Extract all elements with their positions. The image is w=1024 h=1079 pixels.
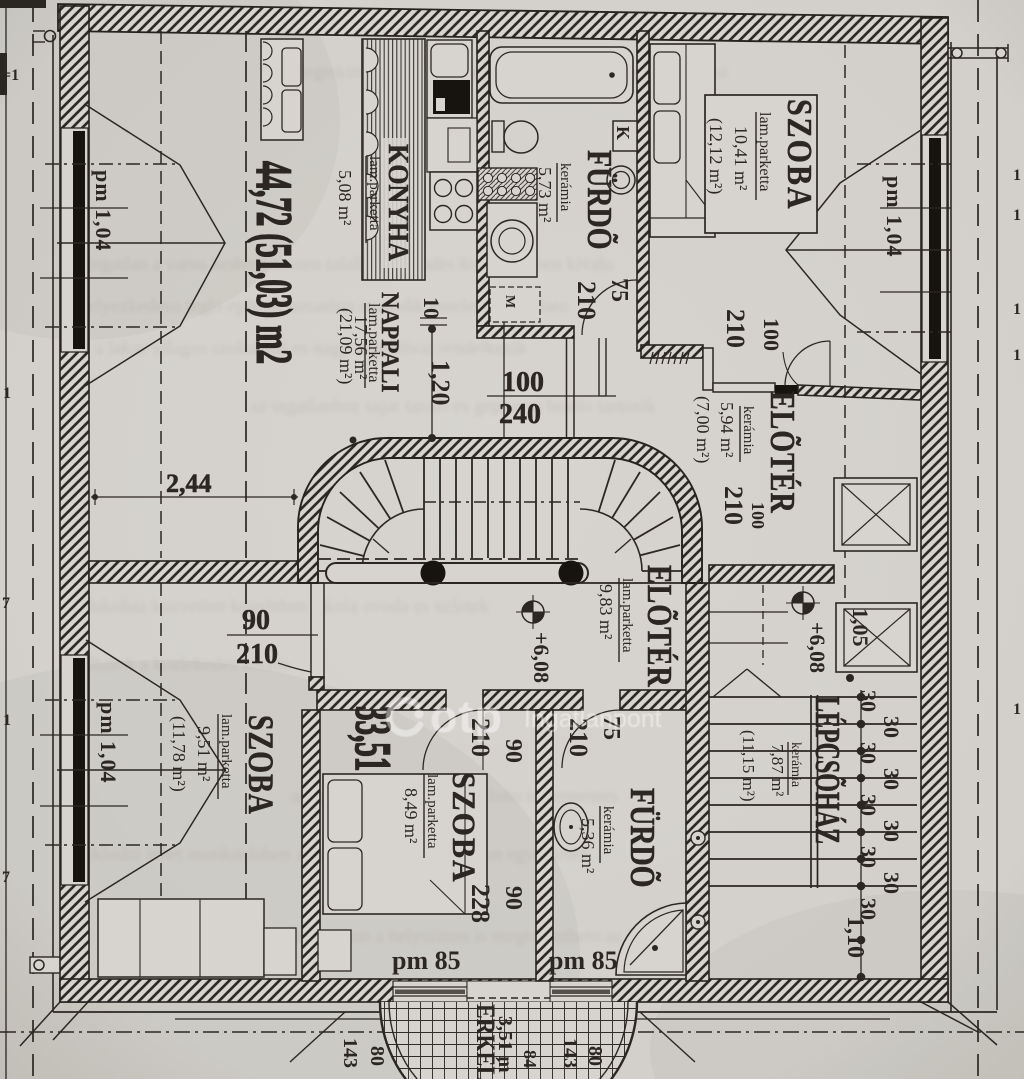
svg-text:7: 7 xyxy=(2,595,10,612)
svg-text:LÉPCSÕHÁZ: LÉPCSÕHÁZ xyxy=(808,696,846,844)
svg-text:lam.parketta: lam.parketta xyxy=(366,156,382,231)
svg-text:90: 90 xyxy=(242,605,270,636)
svg-text:lam.parketta: lam.parketta xyxy=(424,774,440,849)
svg-text:30: 30 xyxy=(879,716,904,738)
svg-text:210: 210 xyxy=(719,486,748,525)
svg-text:30: 30 xyxy=(879,768,904,790)
svg-text:10,41 m²: 10,41 m² xyxy=(731,126,751,190)
svg-text:143: 143 xyxy=(559,1038,581,1068)
svg-text:5,94 m²: 5,94 m² xyxy=(717,402,737,457)
svg-text:7: 7 xyxy=(2,869,10,886)
svg-text:a lakohaz kozvetlen kozeleben: a lakohaz kozvetlen kozeleben iskola ovo… xyxy=(75,596,490,617)
svg-text:ELÕTÉR: ELÕTÉR xyxy=(640,565,679,688)
svg-text:kerámia: kerámia xyxy=(600,806,616,855)
svg-text:100: 100 xyxy=(502,367,544,398)
svg-text:pm 1,04: pm 1,04 xyxy=(882,176,907,258)
svg-text:1: 1 xyxy=(3,385,11,402)
svg-text:143: 143 xyxy=(339,1038,361,1068)
svg-text:1,10: 1,10 xyxy=(842,916,868,958)
svg-text:30: 30 xyxy=(856,742,881,764)
svg-text:+6,08: +6,08 xyxy=(529,632,554,683)
svg-text:8,49 m²: 8,49 m² xyxy=(401,788,421,843)
svg-text:(12,12 m²): (12,12 m²) xyxy=(705,118,726,194)
svg-text:240: 240 xyxy=(499,399,541,430)
svg-text:75: 75 xyxy=(606,278,632,302)
svg-text:210: 210 xyxy=(236,639,278,670)
svg-text:228: 228 xyxy=(466,884,495,923)
svg-text:1: 1 xyxy=(3,712,11,729)
svg-text:5,73 m²: 5,73 m² xyxy=(535,167,555,222)
svg-text:30: 30 xyxy=(879,872,904,894)
svg-text:otp: otp xyxy=(430,691,503,742)
svg-text:5,08 m²: 5,08 m² xyxy=(335,170,355,225)
svg-text:1,05: 1,05 xyxy=(848,608,873,647)
svg-text:1: 1 xyxy=(1013,301,1021,318)
svg-text:FÜRDÕ: FÜRDÕ xyxy=(580,150,619,250)
svg-text:80: 80 xyxy=(366,1046,388,1066)
svg-text:KONYHA: KONYHA xyxy=(383,144,414,261)
svg-text:lam.parketta: lam.parketta xyxy=(619,578,635,653)
svg-text:kerámia: kerámia xyxy=(557,163,573,212)
svg-text:SZOBA: SZOBA xyxy=(240,715,280,815)
svg-text:1,20: 1,20 xyxy=(426,360,455,406)
svg-text:80: 80 xyxy=(584,1046,606,1066)
svg-text:kerámia: kerámia xyxy=(740,406,756,455)
svg-text:210: 210 xyxy=(572,281,601,320)
svg-text:(7,00 m²): (7,00 m²) xyxy=(692,396,713,463)
svg-text:30: 30 xyxy=(856,794,881,816)
svg-text:Ingatlanpont: Ingatlanpont xyxy=(524,705,662,733)
svg-text:ELÕTÉR: ELÕTÉR xyxy=(763,391,802,514)
svg-text:(11,78 m²): (11,78 m²) xyxy=(168,716,189,792)
svg-text:9,51 m²: 9,51 m² xyxy=(194,726,214,781)
svg-text:a lakas vilagos szobakkal es n: a lakas vilagos szobakkal es nagy nappal… xyxy=(95,338,528,359)
svg-text:100: 100 xyxy=(759,318,784,351)
svg-text:1: 1 xyxy=(1013,347,1021,364)
svg-text:M: M xyxy=(502,295,517,308)
svg-text:1: 1 xyxy=(1013,207,1021,224)
svg-text:+6,08: +6,08 xyxy=(805,622,830,673)
svg-text:30: 30 xyxy=(856,690,881,712)
svg-text:2,44: 2,44 xyxy=(166,469,212,498)
svg-text:84: 84 xyxy=(520,1050,540,1068)
svg-text:lam.parketta: lam.parketta xyxy=(218,714,234,789)
svg-text:=1: =1 xyxy=(2,67,19,84)
svg-text:kerámia: kerámia xyxy=(788,742,803,788)
svg-text:(11,15 m²): (11,15 m²) xyxy=(739,730,758,802)
svg-text:9,83 m²: 9,83 m² xyxy=(596,584,616,639)
svg-text:100: 100 xyxy=(748,502,768,529)
svg-text:pm 85: pm 85 xyxy=(549,946,618,975)
svg-text:SZOBA: SZOBA xyxy=(446,772,483,884)
svg-text:lam.parketta: lam.parketta xyxy=(756,112,773,192)
svg-text:210: 210 xyxy=(721,309,750,348)
svg-text:90: 90 xyxy=(500,886,526,910)
svg-text:30: 30 xyxy=(856,846,881,868)
svg-text:44,72 (51,03) m2: 44,72 (51,03) m2 xyxy=(245,161,303,364)
svg-text:K: K xyxy=(613,126,633,140)
svg-text:1: 1 xyxy=(1013,701,1021,718)
svg-text:7,87 m²: 7,87 m² xyxy=(768,744,787,796)
svg-text:90: 90 xyxy=(500,739,526,763)
svg-text:10: 10 xyxy=(419,297,444,319)
svg-text:(21,09 m²): (21,09 m²) xyxy=(335,308,356,384)
svg-text:pm 1,04: pm 1,04 xyxy=(96,702,121,784)
svg-text:1: 1 xyxy=(1013,167,1021,184)
svg-text:FÜRDÕ: FÜRDÕ xyxy=(623,788,662,888)
svg-text:pm 85: pm 85 xyxy=(392,946,461,975)
svg-text:30: 30 xyxy=(879,820,904,842)
svg-text:SZOBA: SZOBA xyxy=(781,99,819,211)
svg-text:pm 1,04: pm 1,04 xyxy=(91,170,116,252)
svg-text:3,51 m: 3,51 m xyxy=(494,1016,516,1073)
